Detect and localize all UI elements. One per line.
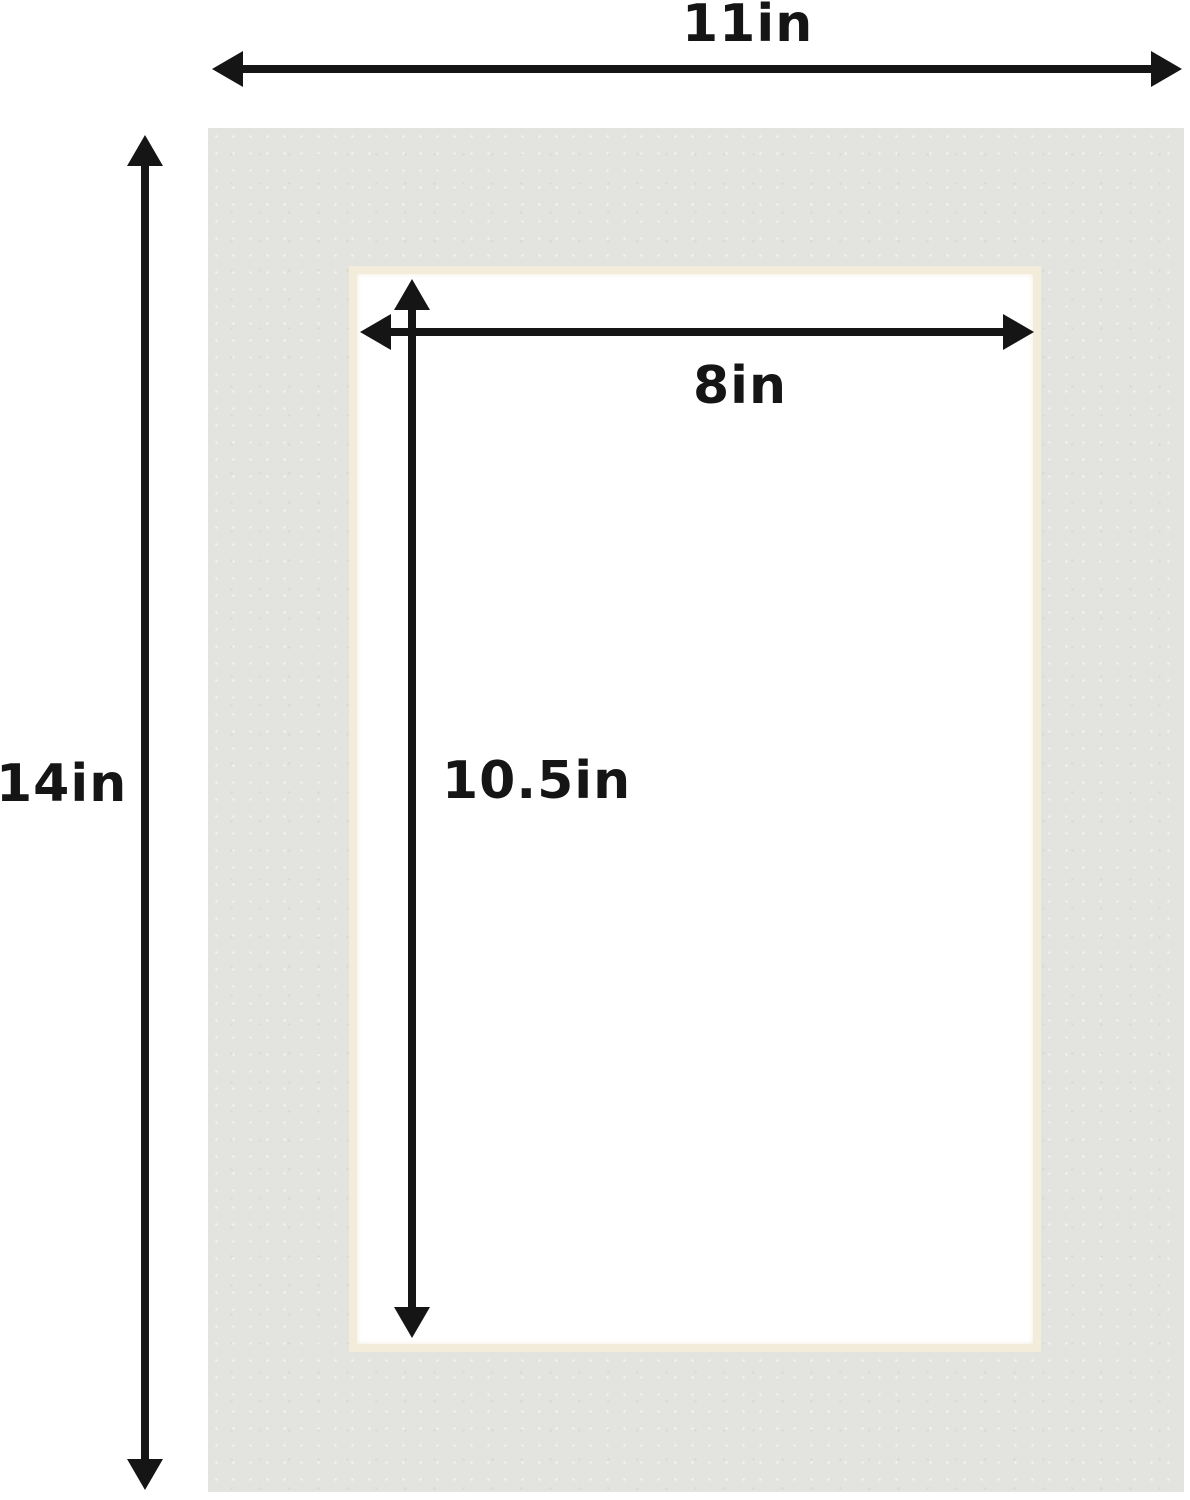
mat-dimension-diagram: 11in 14in 8in 10.5in: [0, 0, 1190, 1500]
opening-width-label: 8in: [693, 360, 787, 412]
arrow-shaft: [408, 310, 416, 1307]
arrowhead-up-icon: [127, 135, 163, 166]
arrowhead-up-icon: [394, 279, 430, 310]
outer-height-label: 14in: [0, 758, 127, 810]
opening-height-dimension-arrow: [394, 279, 430, 1338]
arrowhead-right-icon: [1003, 314, 1034, 350]
arrowhead-left-icon: [360, 314, 391, 350]
opening-width-dimension-arrow: [360, 314, 1034, 350]
arrow-shaft: [141, 166, 149, 1459]
outer-height-dimension-arrow: [127, 135, 163, 1490]
arrowhead-right-icon: [1151, 51, 1182, 87]
outer-width-label: 11in: [682, 0, 813, 50]
arrow-shaft: [391, 328, 1003, 336]
arrowhead-down-icon: [394, 1307, 430, 1338]
arrow-shaft: [243, 65, 1151, 73]
outer-width-dimension-arrow: [212, 51, 1182, 87]
arrowhead-down-icon: [127, 1459, 163, 1490]
opening-height-label: 10.5in: [442, 755, 631, 807]
arrowhead-left-icon: [212, 51, 243, 87]
